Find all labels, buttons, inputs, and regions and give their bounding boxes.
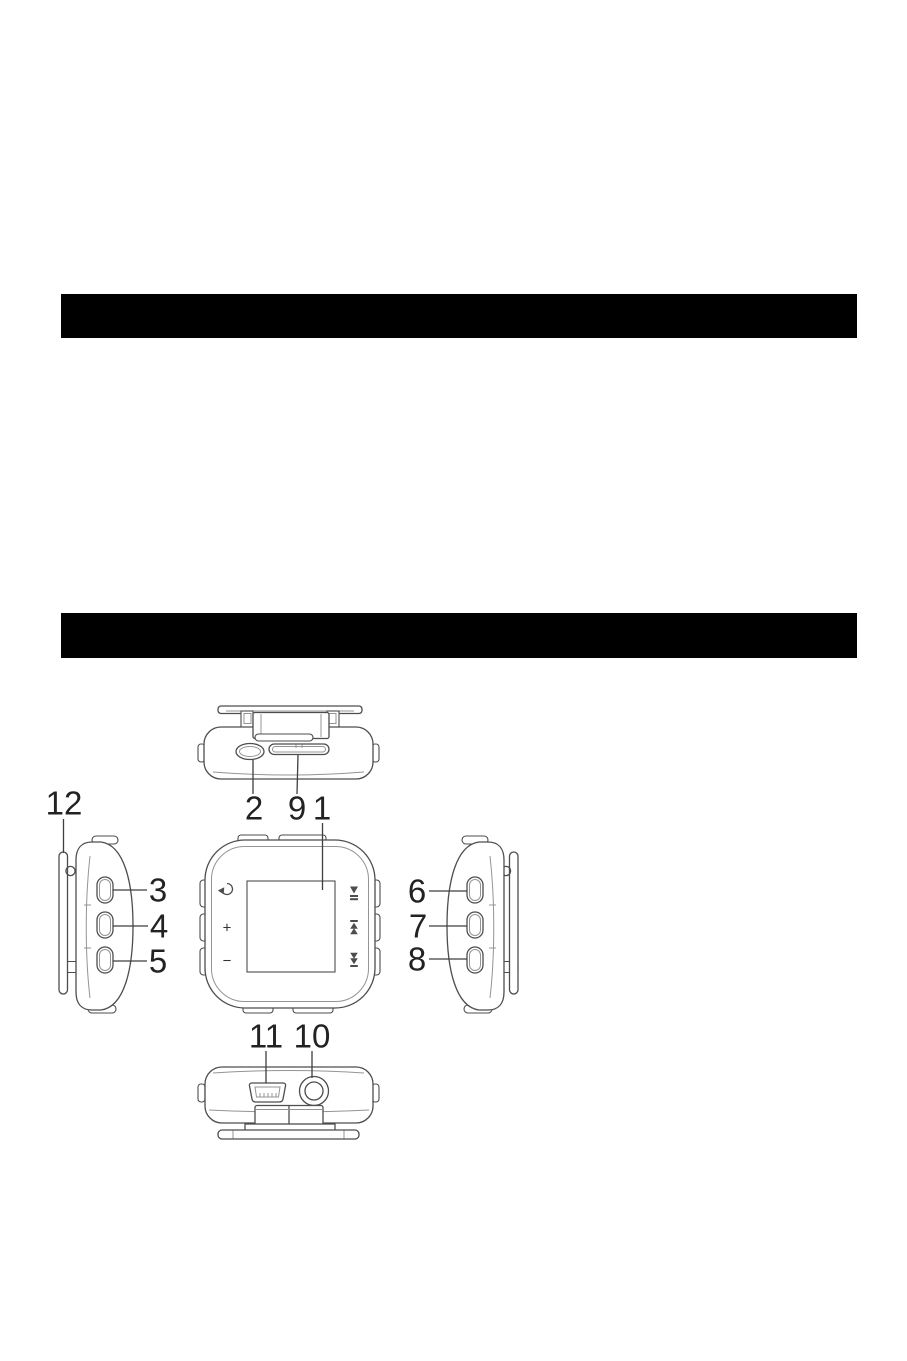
headphone-jack (300, 1077, 329, 1106)
callout-label-7: 7 (409, 910, 427, 943)
device-diagram: + − (0, 0, 907, 1361)
device-top-view (198, 706, 379, 779)
belt-clip-right (510, 852, 519, 994)
callout-label-6: 6 (408, 875, 426, 908)
side-button-5 (97, 947, 113, 973)
side-button-3 (97, 877, 113, 903)
top-slider-slot (269, 744, 329, 755)
callout-label-12: 12 (46, 787, 83, 820)
device-left-side-view (59, 836, 133, 1013)
display-screen (247, 881, 335, 972)
device-bottom-view (198, 1067, 379, 1139)
callout-label-2: 2 (245, 792, 263, 825)
side-button-7 (467, 912, 483, 938)
micro-usb-port (249, 1083, 285, 1102)
callout-label-1: 1 (313, 792, 331, 825)
callout-label-3: 3 (149, 874, 167, 907)
side-button-8 (467, 947, 483, 973)
callout-label-10: 10 (294, 1020, 331, 1053)
side-button-6 (467, 877, 483, 903)
manual-page: + − (0, 0, 907, 1361)
device-right-side-view (447, 836, 518, 1013)
callout-label-11: 11 (249, 1020, 283, 1053)
callout-label-8: 8 (408, 943, 426, 976)
device-front-view: + − (200, 835, 380, 1013)
clip-plate-bottom (218, 1130, 359, 1139)
volume-up-label: + (223, 920, 232, 937)
top-button (236, 744, 264, 760)
callout-label-5: 5 (149, 945, 167, 978)
side-button-4 (97, 912, 113, 938)
volume-down-label: − (223, 953, 232, 970)
callout-label-9: 9 (288, 792, 306, 825)
callout-label-4: 4 (150, 910, 168, 943)
